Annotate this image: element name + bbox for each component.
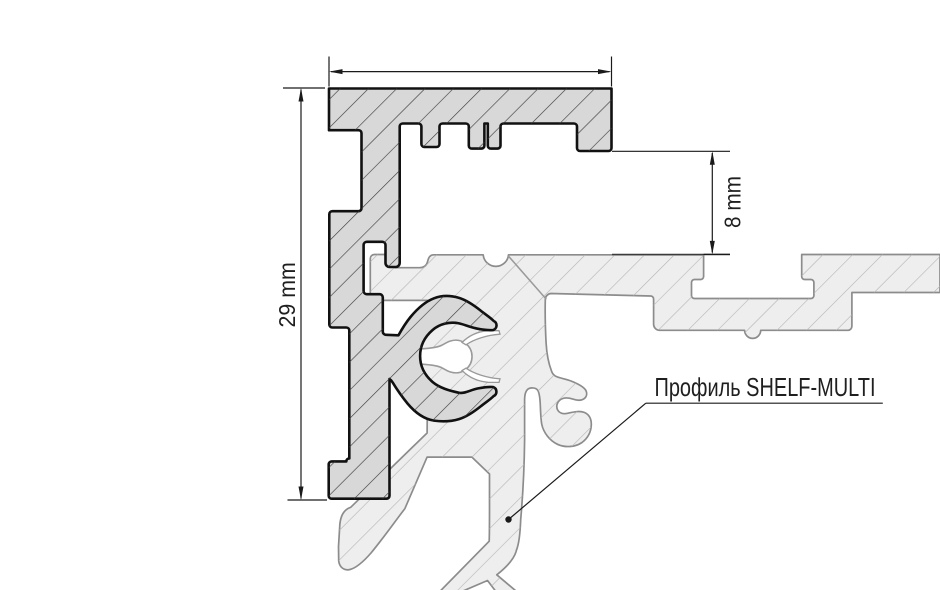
svg-text:29 mm: 29 mm	[274, 262, 300, 327]
svg-text:8 mm: 8 mm	[720, 176, 746, 228]
svg-text:Профиль SHELF-MULTI: Профиль SHELF-MULTI	[655, 372, 876, 402]
